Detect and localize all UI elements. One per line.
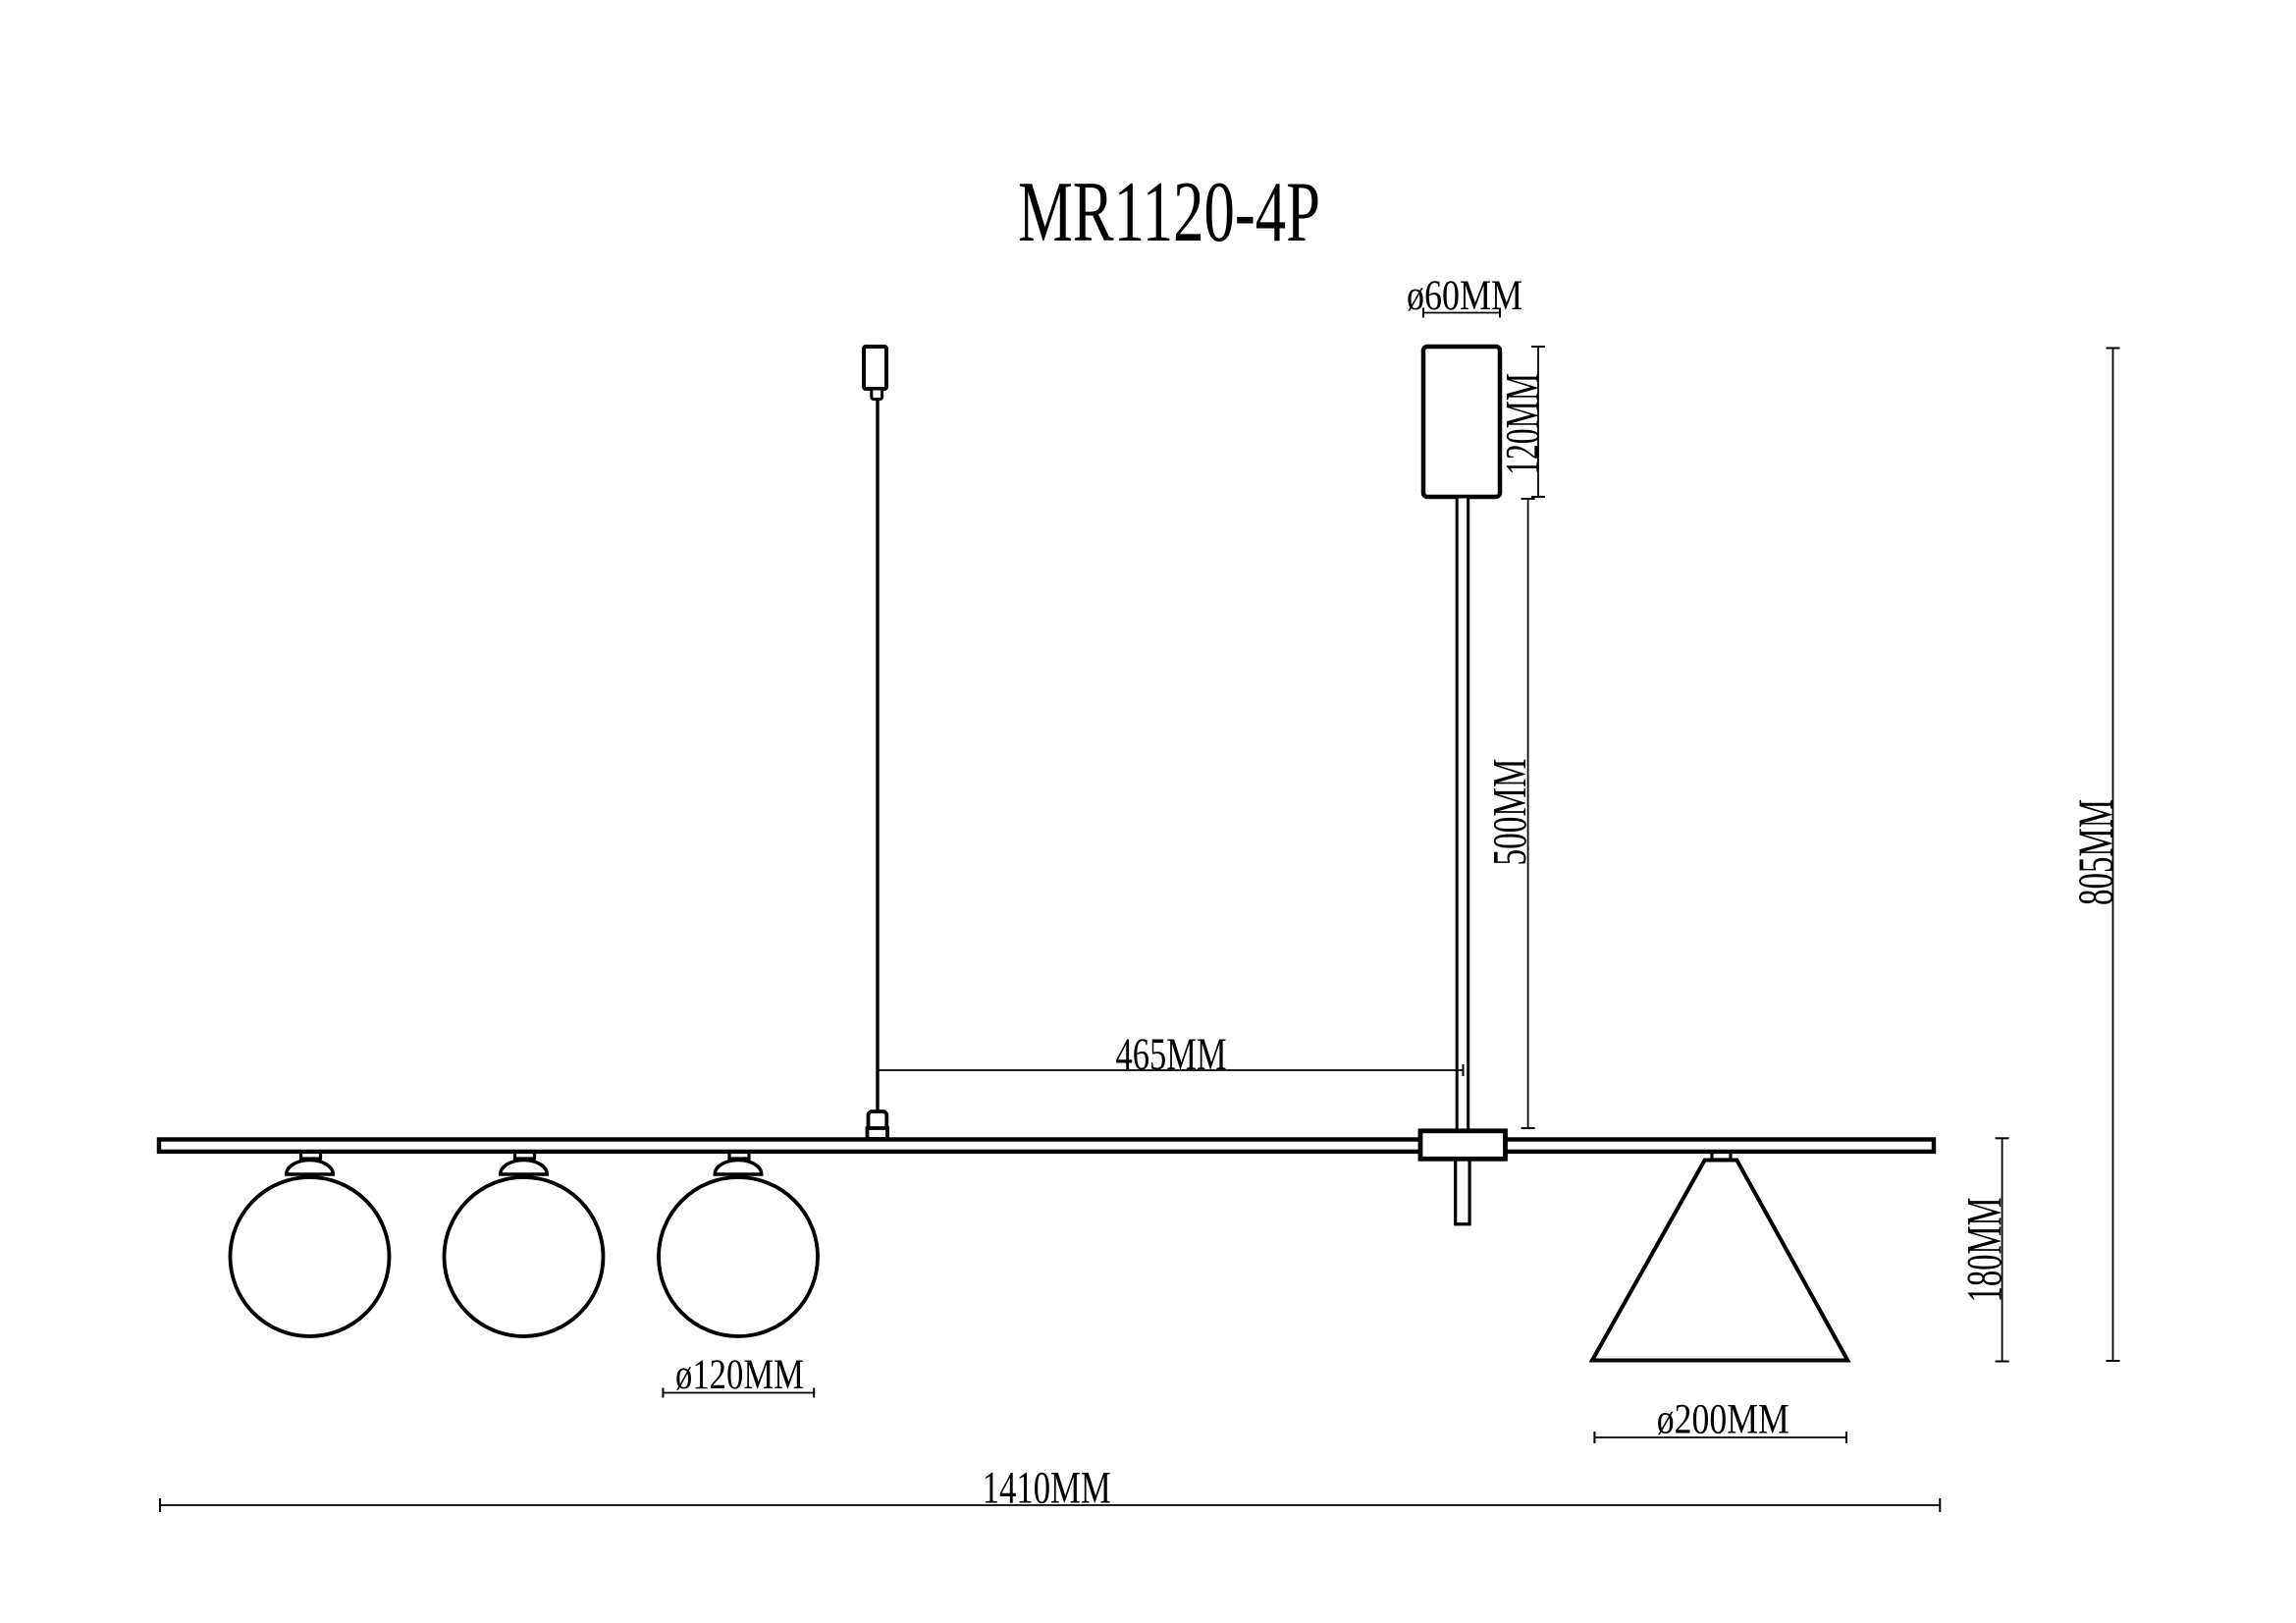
svg-text:ø120MM: ø120MM [675,1352,804,1398]
svg-text:500MM: 500MM [1482,759,1536,866]
svg-text:465MM: 465MM [1116,1029,1227,1080]
svg-text:MR1120-4P: MR1120-4P [1018,165,1320,260]
svg-text:180MM: 180MM [1958,1198,2013,1303]
svg-text:120MM: 120MM [1495,373,1549,475]
svg-text:ø200MM: ø200MM [1657,1397,1789,1443]
svg-text:805MM: 805MM [2069,799,2124,905]
